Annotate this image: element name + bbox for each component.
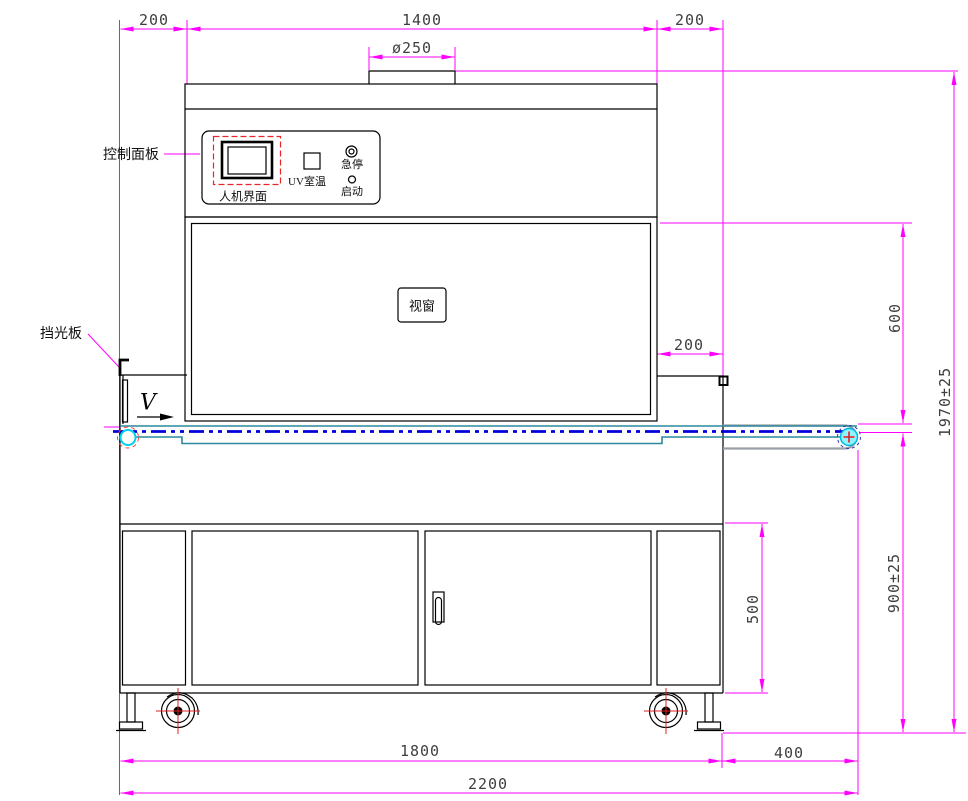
light-shield-bracket <box>120 360 129 376</box>
caster-centerlines <box>156 688 200 734</box>
dim-900: 900±25 <box>885 553 903 613</box>
dim-duct-250: ø250 <box>392 39 432 57</box>
roller-right <box>838 426 861 449</box>
dim-1970: 1970±25 <box>936 367 954 437</box>
leveling-foot-right <box>694 693 724 731</box>
foot-base <box>698 722 721 729</box>
dimension-lines <box>88 20 966 795</box>
window-section-inner <box>192 224 651 415</box>
label-estop: 急停 <box>341 156 363 172</box>
label-viewport: 视窗 <box>409 296 435 315</box>
dim-1400: 1400 <box>402 11 442 29</box>
start-button <box>349 176 356 183</box>
caster-centerlines <box>644 688 688 734</box>
cabinet-left-stile <box>123 531 186 685</box>
roller-left-wheel <box>121 430 136 445</box>
right-tunnel <box>657 376 723 426</box>
conveyor-bottom-rail <box>120 437 857 444</box>
exhaust-duct <box>369 71 455 84</box>
foot-stem <box>705 693 713 722</box>
dim-400: 400 <box>774 744 804 762</box>
cabinet-door-right <box>425 531 651 685</box>
foot-stem <box>127 693 135 722</box>
dim-top-left-200: 200 <box>139 11 169 29</box>
dim-2200: 2200 <box>468 775 508 793</box>
caster-left <box>156 688 200 734</box>
dim-500: 500 <box>744 594 762 624</box>
dim-mid-200: 200 <box>674 336 704 354</box>
hmi-screen <box>228 147 266 174</box>
foot-base <box>120 722 143 729</box>
conveyor <box>113 426 861 449</box>
label-light-shield: 挡光板 <box>40 323 82 343</box>
label-control-panel: 控制面板 <box>103 144 159 164</box>
machine-outline <box>116 71 728 734</box>
door-handle-slot <box>436 598 442 625</box>
uv-temp-indicator <box>304 153 320 169</box>
window-section-outer <box>185 217 657 421</box>
dim-600: 600 <box>886 303 904 333</box>
cabinet-door-left <box>192 531 418 685</box>
speed-arrow-head <box>160 414 174 421</box>
label-start: 启动 <box>341 183 363 199</box>
dim-top-right-200: 200 <box>675 11 705 29</box>
emergency-stop-button-inner <box>349 149 354 154</box>
leveling-foot-left <box>116 693 146 731</box>
label-uv-temp: UV室温 <box>288 173 326 189</box>
cabinet-right-stile <box>657 531 720 685</box>
leader-light-shield <box>88 334 119 367</box>
caster-right <box>644 688 688 734</box>
frame-columns <box>120 426 723 693</box>
engineering-drawing-canvas: 200 1400 200 ø250 200 600 900±25 1970±25… <box>0 0 968 801</box>
label-belt-speed: V <box>140 391 156 416</box>
door-handle <box>433 592 444 622</box>
dim-1800: 1800 <box>400 742 440 760</box>
label-hmi: 人机界面 <box>219 188 267 205</box>
